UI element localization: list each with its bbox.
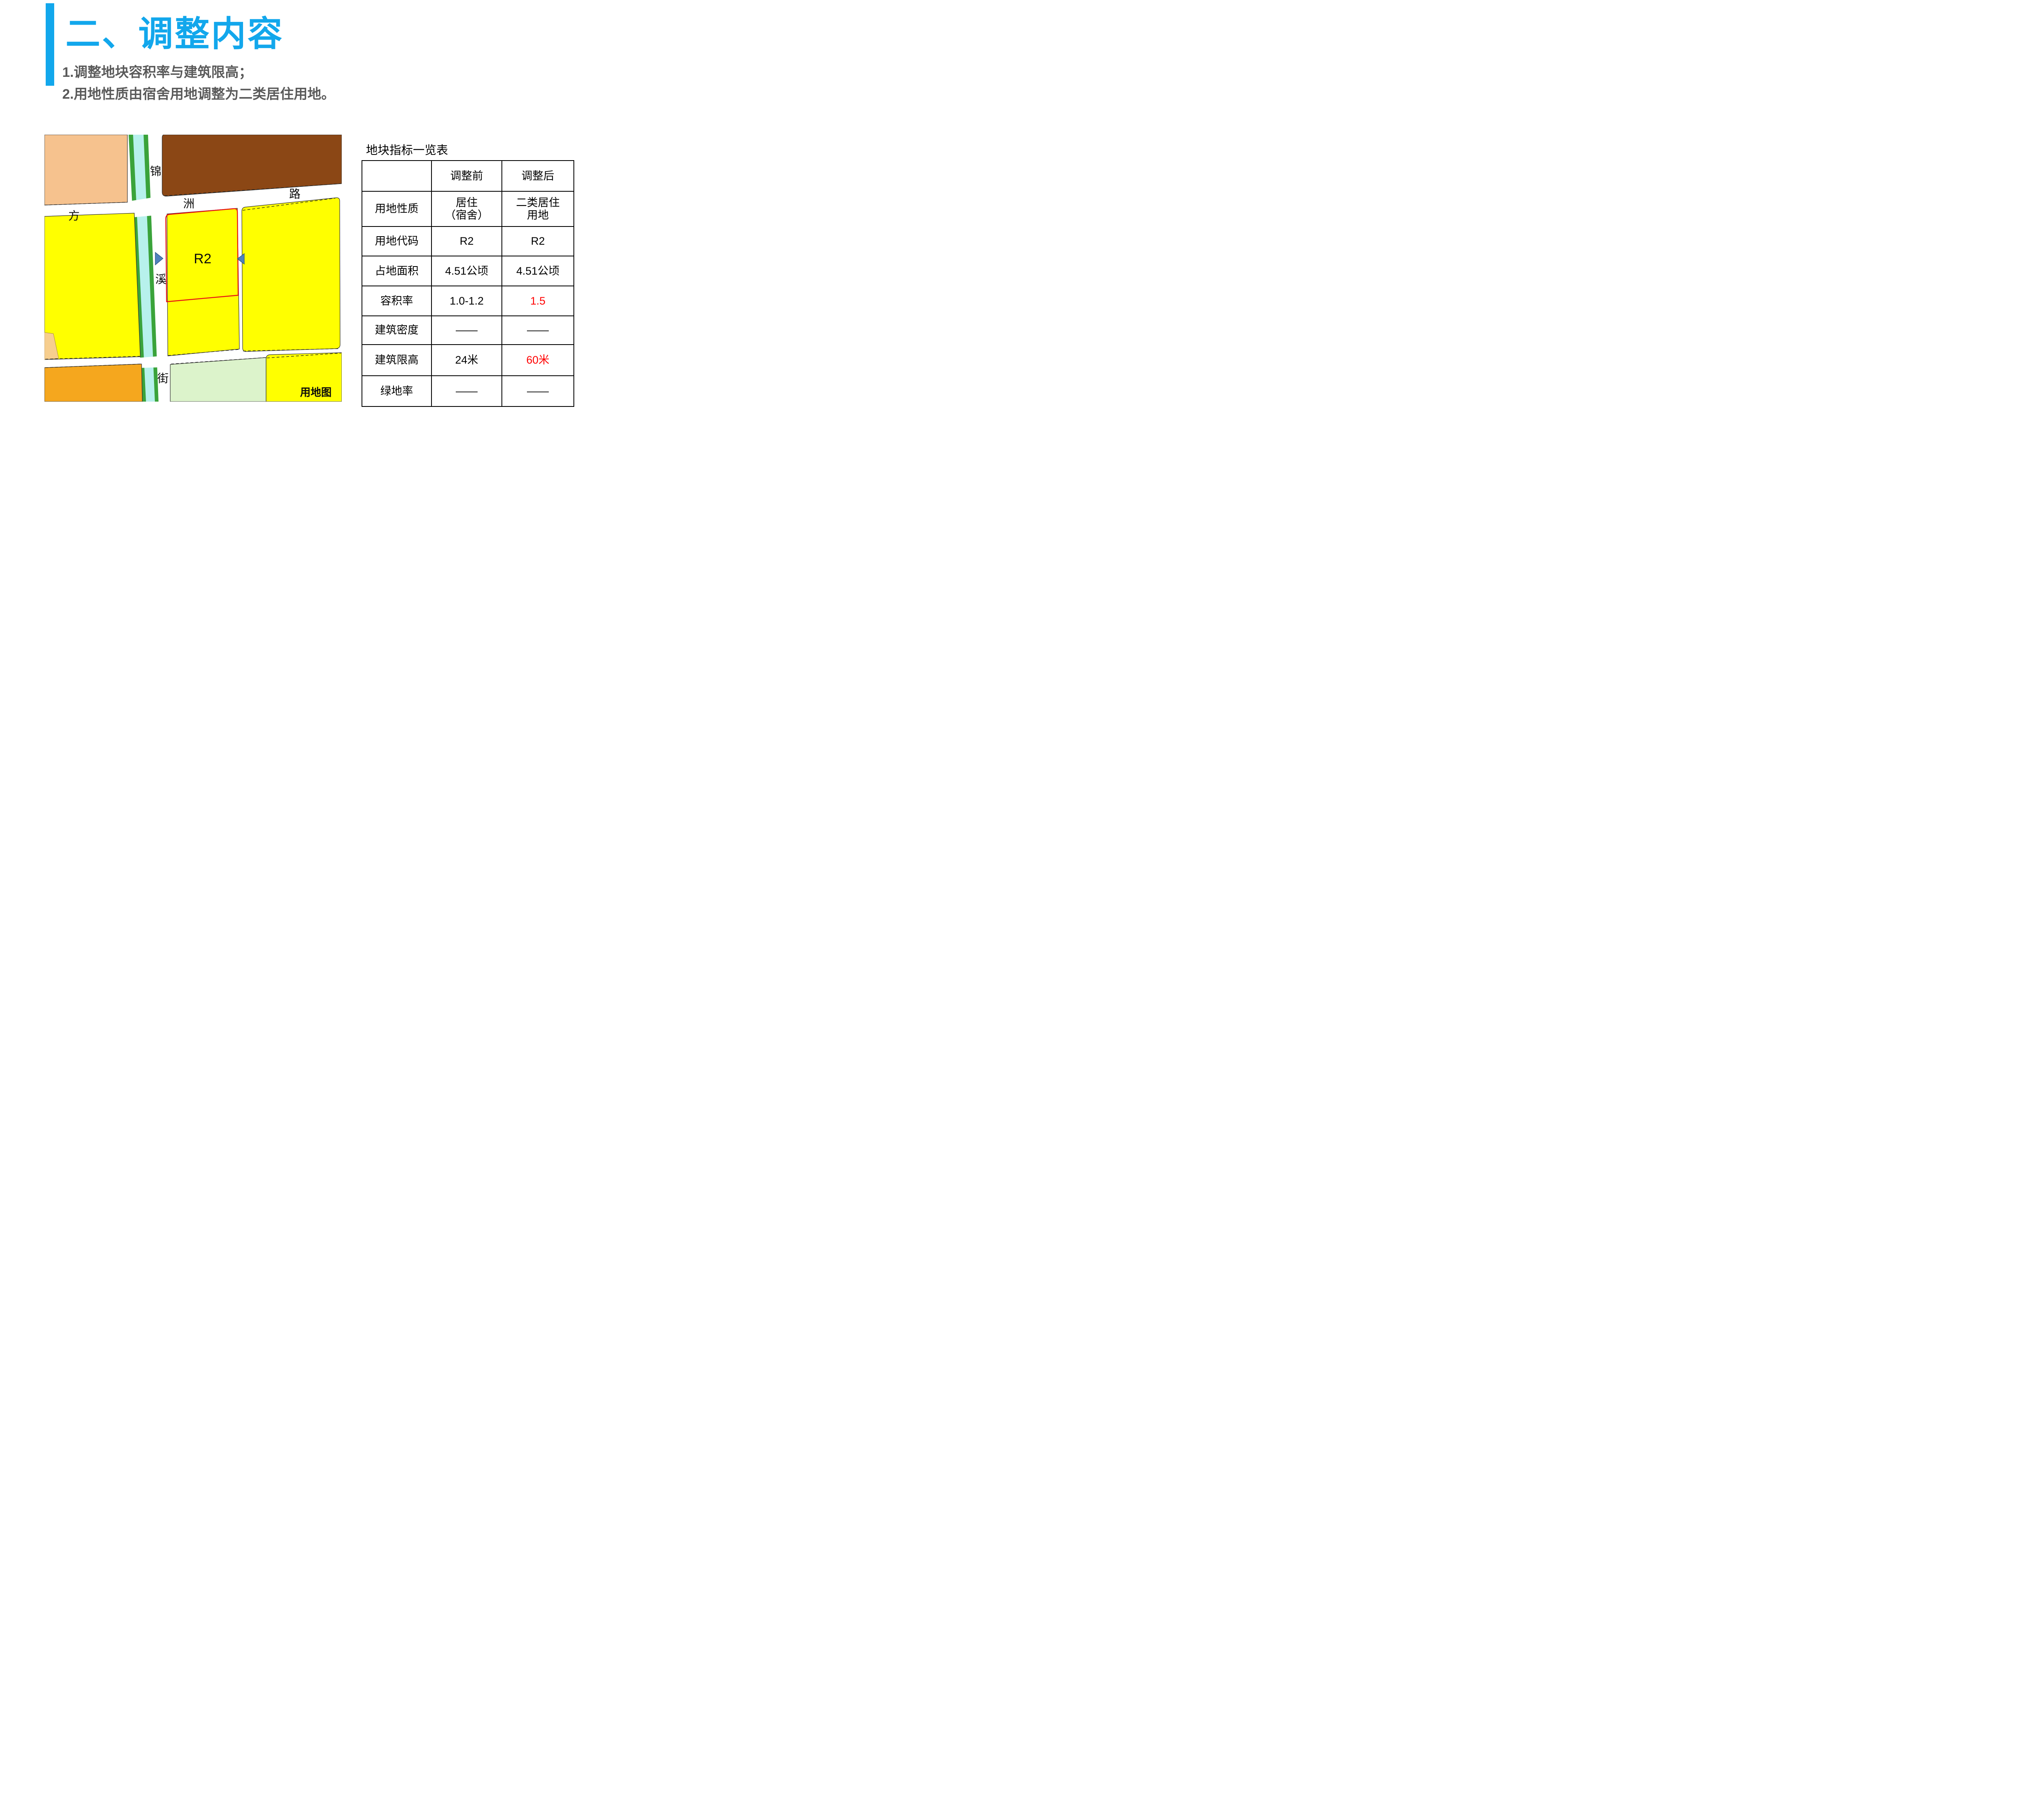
row-label-cell: 建筑限高 [362,345,431,376]
before-value-cell: 居住 （宿舍） [431,191,502,226]
before-value-cell: —— [431,376,502,406]
row-label-cell: 用地性质 [362,191,431,226]
row-label-cell: 建筑密度 [362,316,431,345]
parcel-yellow-center [167,208,239,356]
parcel-orange [44,364,142,402]
after-value-cell: 二类居住 用地 [502,191,574,226]
indicator-table-body: 用地性质居住 （宿舍）二类居住 用地用地代码R2R2占地面积4.51公顷4.51… [362,191,574,406]
table-row: 建筑密度———— [362,316,574,345]
after-value-cell: 60米 [502,345,574,376]
slide: 二、调整内容 1.调整地块容积率与建筑限高； 2.用地性质由宿舍用地调整为二类居… [0,0,607,455]
corner-cell [362,161,431,191]
row-label-cell: 容积率 [362,286,431,316]
table-header-row: 调整前 调整后 [362,161,574,191]
table-row: 占地面积4.51公顷4.51公顷 [362,256,574,286]
row-label-cell: 绿地率 [362,376,431,406]
road-label-lu: 路 [289,188,300,200]
after-value-cell: —— [502,376,574,406]
parcel-code-label: R2 [194,251,211,267]
title-accent-bar [46,3,54,86]
road-label-jie: 街 [157,372,169,385]
marker-arrow-left [155,252,163,265]
table-row: 用地代码R2R2 [362,226,574,256]
page-title: 二、调整内容 [66,15,284,53]
marker-arrow-right [237,254,244,264]
table-row: 建筑限高24米60米 [362,345,574,376]
after-value-cell: R2 [502,226,574,256]
parcel-yellow-west [44,213,140,360]
parcel-green-space [170,358,266,402]
indicator-table: 调整前 调整后 用地性质居住 （宿舍）二类居住 用地用地代码R2R2占地面积4.… [362,160,574,407]
before-value-cell: 4.51公顷 [431,256,502,286]
table-row: 用地性质居住 （宿舍）二类居住 用地 [362,191,574,226]
road-label-jin: 锦 [150,165,161,178]
land-use-map: 锦 溪 街 方 洲 路 R2 用地图 [44,135,342,402]
before-value-cell: 1.0-1.2 [431,286,502,316]
road-label-zhou: 洲 [183,197,195,210]
after-value-cell: —— [502,316,574,345]
table-row: 容积率1.0-1.21.5 [362,286,574,316]
parcel-brown [162,135,342,196]
table-title: 地块指标一览表 [366,141,448,158]
before-value-cell: 24米 [431,345,502,376]
bullet-list: 1.调整地块容积率与建筑限高； 2.用地性质由宿舍用地调整为二类居住用地。 [62,65,335,108]
before-value-cell: R2 [431,226,502,256]
land-use-map-svg: 锦 溪 街 方 洲 路 R2 用地图 [44,135,342,402]
road-label-xi: 溪 [155,273,167,286]
before-value-cell: —— [431,316,502,345]
bullet-item-1: 1.调整地块容积率与建筑限高； [62,65,335,80]
bullet-item-2: 2.用地性质由宿舍用地调整为二类居住用地。 [62,87,335,102]
after-value-cell: 1.5 [502,286,574,316]
map-caption: 用地图 [300,386,332,398]
road-label-fang: 方 [68,210,80,222]
parcel-peach [44,135,127,205]
column-header-before: 调整前 [431,161,502,191]
parcel-yellow-east [242,198,340,351]
row-label-cell: 占地面积 [362,256,431,286]
after-value-cell: 4.51公顷 [502,256,574,286]
indicator-table-head: 调整前 调整后 [362,161,574,191]
column-header-after: 调整后 [502,161,574,191]
row-label-cell: 用地代码 [362,226,431,256]
table-row: 绿地率———— [362,376,574,406]
